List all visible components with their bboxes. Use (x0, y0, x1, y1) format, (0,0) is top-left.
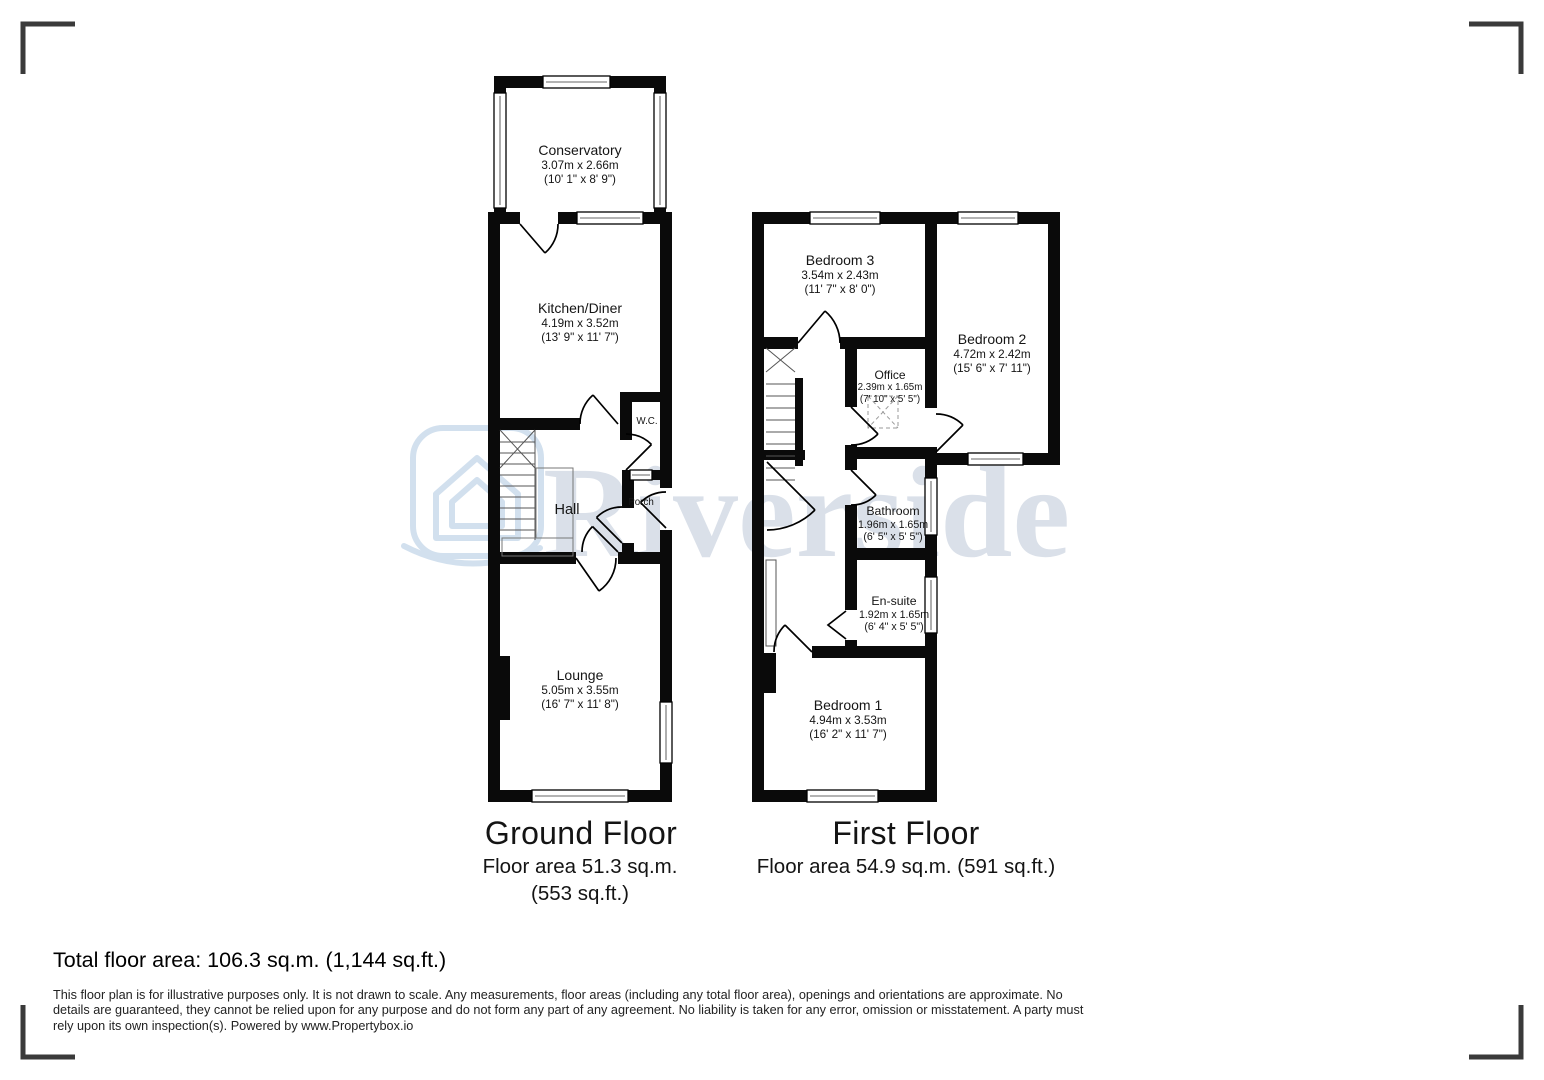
watermark-logo-icon (404, 428, 541, 564)
conservatory-door-opening (520, 212, 558, 224)
floorplan-drawing: Riverside (0, 0, 1544, 1080)
floorplan-page: Riverside (0, 0, 1544, 1080)
ground-floor-area-imperial: (553 sq.ft.) (531, 882, 629, 906)
room-label-bedroom3: Bedroom 3 3.54m x 2.43m (11' 7" x 8' 0") (801, 252, 878, 297)
room-label-conservatory: Conservatory 3.07m x 2.66m (10' 1" x 8' … (538, 142, 621, 187)
bracket-top-left (23, 24, 75, 74)
bracket-bottom-right (1469, 1005, 1521, 1057)
room-label-lounge: Lounge 5.05m x 3.55m (16' 7" x 11' 8") (541, 667, 619, 712)
disclaimer-text: This floor plan is for illustrative purp… (53, 988, 1093, 1034)
room-label-bedroom1: Bedroom 1 4.94m x 3.53m (16' 2" x 11' 7"… (809, 697, 887, 742)
first-floor-title: First Floor (832, 815, 979, 852)
room-label-hall: Hall (555, 502, 580, 519)
room-label-office: Office 2.39m x 1.65m (7' 10" x 5' 5") (858, 368, 923, 406)
first-floor-area: Floor area 54.9 sq.m. (591 sq.ft.) (757, 855, 1056, 879)
room-label-ensuite: En-suite 1.92m x 1.65m (6' 4" x 5' 5") (859, 594, 929, 634)
room-label-porch: Porch (628, 497, 654, 509)
ground-floor-title: Ground Floor (485, 815, 677, 852)
ground-floor-area-metric: Floor area 51.3 sq.m. (483, 855, 678, 879)
bracket-top-right (1469, 24, 1521, 74)
room-label-wc: W.C. (636, 416, 657, 428)
room-label-bedroom2: Bedroom 2 4.72m x 2.42m (15' 6" x 7' 11"… (953, 331, 1031, 376)
room-label-kitchen-diner: Kitchen/Diner 4.19m x 3.52m (13' 9" x 11… (538, 300, 622, 345)
room-label-bathroom: Bathroom 1.96m x 1.65m (6' 5" x 5' 5") (858, 504, 928, 544)
total-floor-area: Total floor area: 106.3 sq.m. (1,144 sq.… (53, 948, 446, 973)
